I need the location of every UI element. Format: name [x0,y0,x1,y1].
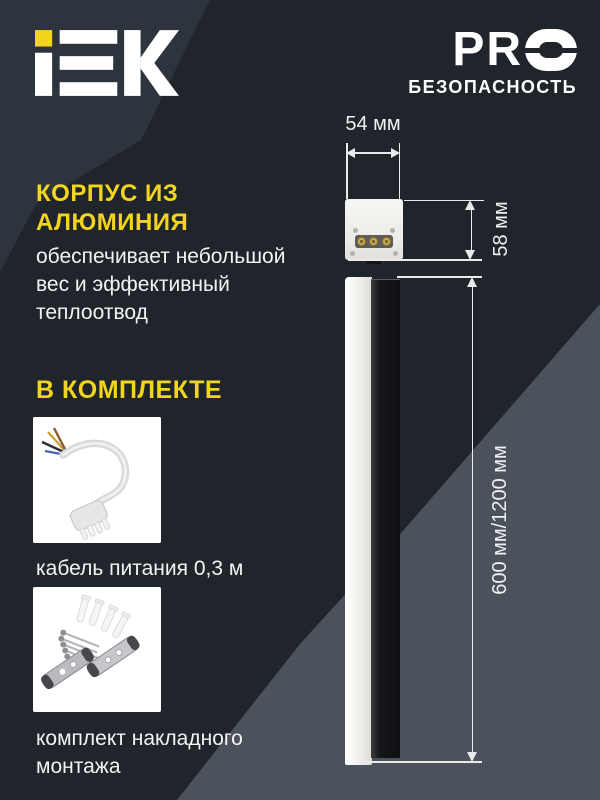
luminaire-side-view [345,277,400,765]
screw-icon [390,228,395,233]
feature-body-line: теплоотвод [36,299,285,327]
mounting-kit-image [33,587,161,712]
extension-line [358,761,482,763]
extension-line [346,143,348,199]
kit-item-mounting-kit [33,587,161,712]
length-dimension-label: 600 мм/1200 мм [489,433,511,607]
connector-terminal [369,237,378,246]
connector-terminal [357,237,366,246]
kit-heading: В КОМПЛЕКТЕ [36,376,222,405]
connector-terminal [382,237,391,246]
dimension-arrow-down-icon [467,752,477,762]
iek-logo [35,30,179,96]
luminaire-end-view [345,199,403,260]
extension-line [399,143,401,199]
width-dimension-label: 54 мм [335,113,411,136]
feature-body-line: вес и эффективный [36,271,285,299]
dimension-arrow-up-icon [465,200,475,210]
screw-icon [353,228,358,233]
feature-body: обеспечивает небольшой вес и эффективный… [36,243,285,327]
feature-heading: КОРПУС ИЗ АЛЮМИНИЯ [36,179,188,237]
kit-caption: комплект накладного монтажа [36,725,243,781]
feature-heading-line: КОРПУС ИЗ [36,179,188,208]
height-dimension-label: 58 мм [490,199,510,259]
dimension-arrow-up-icon [467,277,477,287]
luminaire-diffuser [345,277,372,765]
height-dimension-line [471,205,473,253]
length-dimension-line [472,283,474,756]
extension-line [348,259,482,261]
width-dimension-line [350,152,396,154]
iek-logo-yellow-dot [35,30,52,46]
screw-icon [350,251,355,256]
pro-wordmark: PR [408,28,577,72]
screw-icon [393,251,398,256]
power-cable-image [33,417,161,543]
kit-caption-line: комплект накладного [36,725,243,753]
kit-item-power-cable [33,417,161,543]
product-poster: PR БЕЗОПАСНОСТЬ КОРПУС ИЗ АЛЮМИНИЯ обесп… [0,0,600,800]
pro-letter-o-icon [525,29,577,71]
pro-subtitle: БЕЗОПАСНОСТЬ [408,77,577,98]
terminal-block [355,235,393,248]
pro-logo: PR БЕЗОПАСНОСТЬ [408,28,577,98]
kit-caption: кабель питания 0,3 м [36,555,243,583]
feature-heading-line: АЛЮМИНИЯ [36,208,188,237]
dimension-arrow-down-icon [465,250,475,260]
luminaire-housing [371,279,400,758]
feature-body-line: обеспечивает небольшой [36,243,285,271]
kit-caption-line: монтажа [36,753,243,781]
pro-letters: PR [452,28,523,72]
